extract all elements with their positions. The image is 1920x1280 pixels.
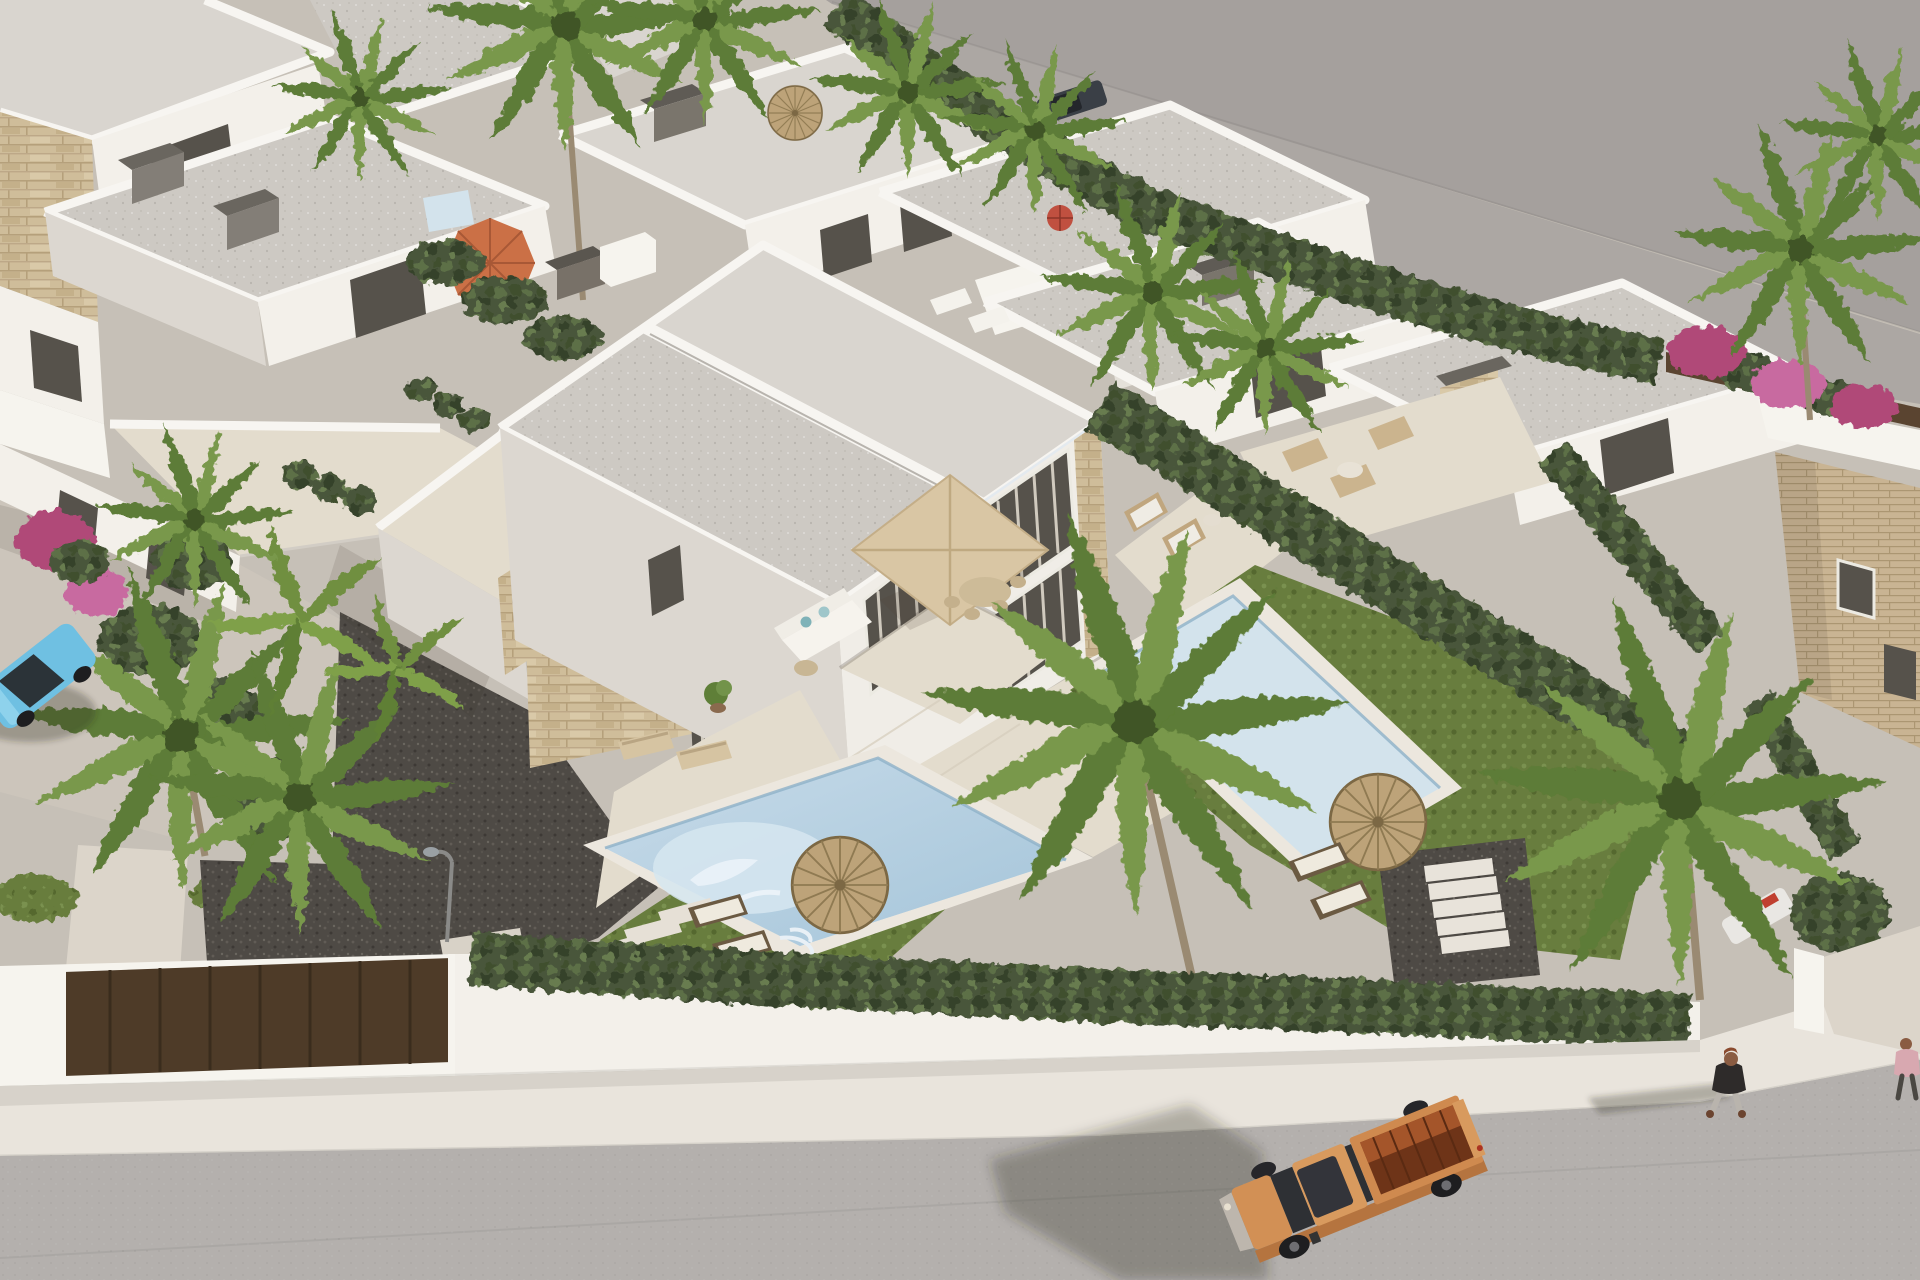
garden-walkway: [66, 845, 188, 972]
red-parasol: [1047, 205, 1073, 231]
window: [1884, 644, 1916, 700]
bougainvillea: [1750, 360, 1826, 408]
gate-pillar: [36, 966, 66, 1082]
driveway-pillar: [1794, 948, 1824, 1034]
render-canvas: Aerial 3D render of a modern white villa…: [0, 0, 1920, 1280]
scene-svg: Aerial 3D render of a modern white villa…: [0, 0, 1920, 1280]
gate: [64, 958, 452, 1076]
thatch-parasol-icon: [768, 86, 822, 140]
bougainvillea: [1830, 384, 1898, 428]
grass-tuft: [0, 874, 78, 922]
thatch-parasol-icon: [792, 837, 888, 933]
pedestrian-head: [1724, 1052, 1738, 1066]
white-chimney: [600, 232, 656, 287]
pedestrian-jacket: [1712, 1062, 1746, 1094]
